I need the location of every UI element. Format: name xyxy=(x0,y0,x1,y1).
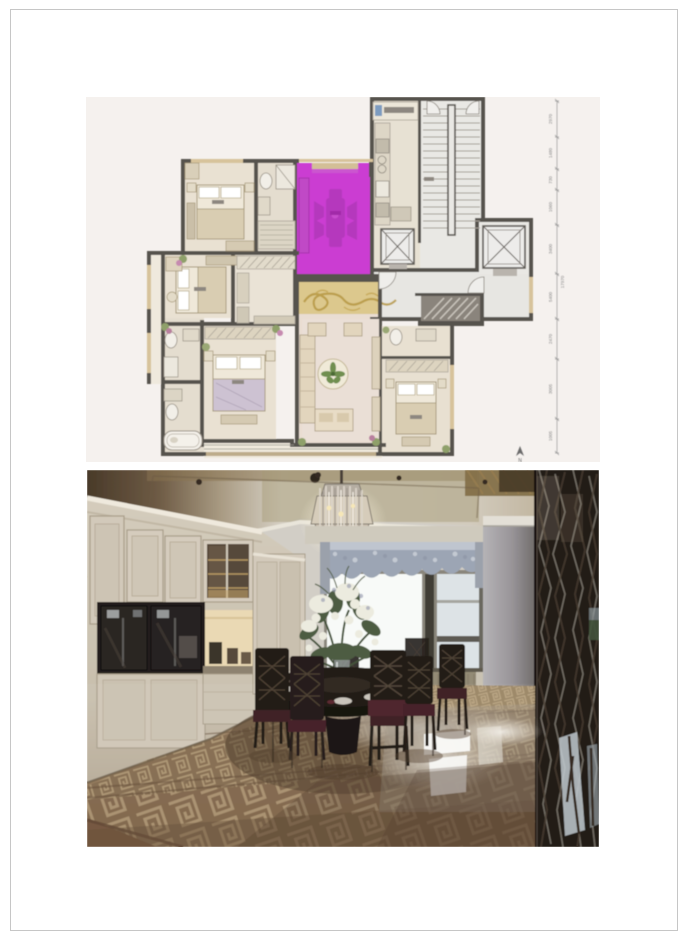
svg-text:2970: 2970 xyxy=(548,113,553,124)
svg-text:1480: 1480 xyxy=(548,147,553,158)
svg-text:730: 730 xyxy=(548,176,553,184)
svg-text:1060: 1060 xyxy=(548,201,553,212)
svg-text:N: N xyxy=(518,458,522,462)
svg-text:3400: 3400 xyxy=(548,243,553,254)
svg-text:5400: 5400 xyxy=(548,291,553,302)
svg-text:3005: 3005 xyxy=(548,383,553,394)
svg-text:2470: 2470 xyxy=(548,333,553,344)
svg-text:1005: 1005 xyxy=(548,430,553,441)
svg-text:17970: 17970 xyxy=(560,275,565,288)
